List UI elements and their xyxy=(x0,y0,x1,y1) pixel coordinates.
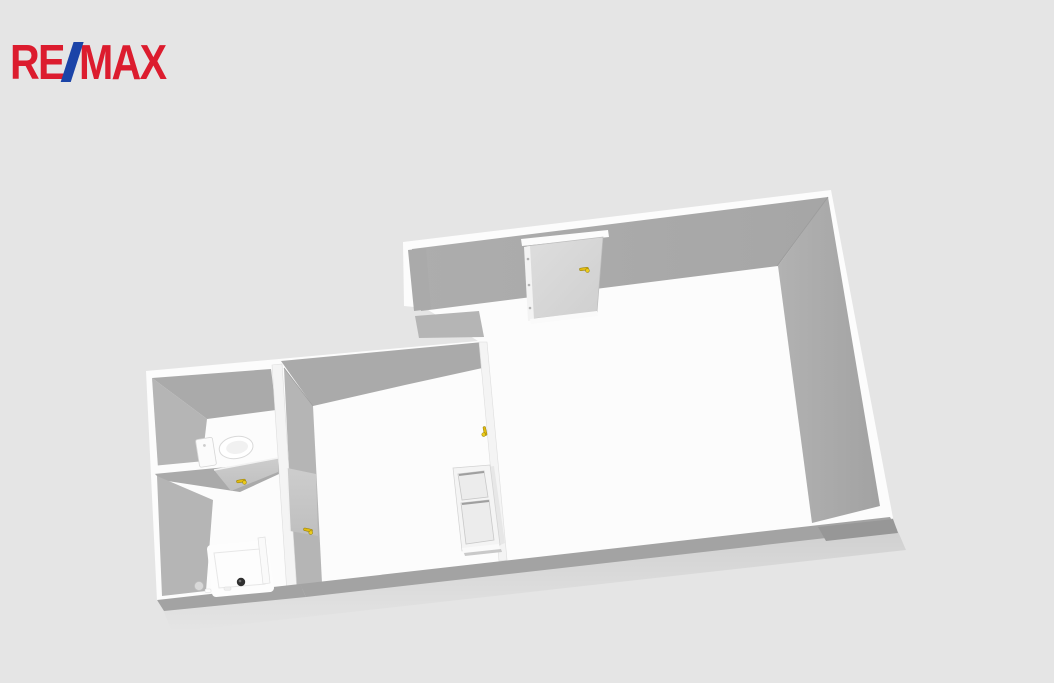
shower-fitting-icon xyxy=(205,589,211,592)
floor-plan-3d xyxy=(0,0,1054,683)
door-hinge-icon xyxy=(528,284,531,287)
bathroom-door xyxy=(287,468,318,536)
remax-logo-max: MAX xyxy=(79,44,165,82)
bathroom-door-leaf xyxy=(287,468,318,536)
entry-door xyxy=(521,230,609,324)
shower-fitting-icon xyxy=(224,587,231,590)
shower-drain-cap xyxy=(239,580,242,583)
door-hinge-icon xyxy=(529,307,532,310)
entry-door-panel xyxy=(527,237,603,319)
remax-logo-re: RE xyxy=(10,44,64,82)
remax-logo: RE MAX xyxy=(10,42,165,82)
fridge-lower-door xyxy=(461,500,494,544)
shower-drain-icon xyxy=(237,578,245,586)
shower-fitting-icon xyxy=(195,582,204,591)
door-hinge-icon xyxy=(527,258,530,261)
screenshot-stage: RE MAX xyxy=(0,0,1054,683)
